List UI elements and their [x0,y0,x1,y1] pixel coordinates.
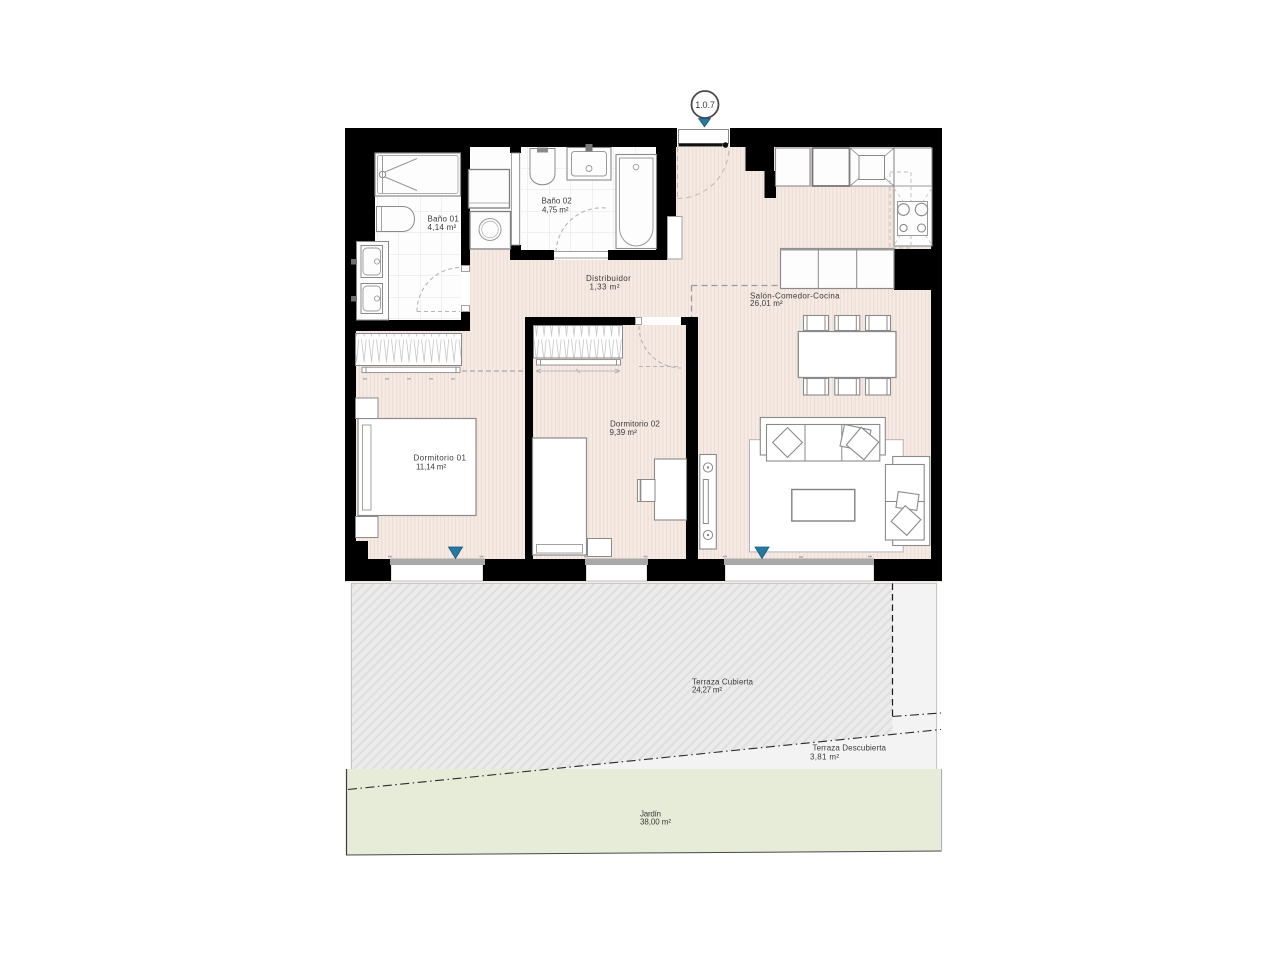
svg-text:38,00 m²: 38,00 m² [640,818,671,827]
svg-text:1.0.7: 1.0.7 [695,100,715,110]
svg-text:Baño 02: Baño 02 [542,197,573,206]
svg-text:9,39 m²: 9,39 m² [610,428,638,437]
svg-text:11,14 m²: 11,14 m² [416,463,446,472]
svg-text:3,81 m²: 3,81 m² [810,753,839,762]
svg-text:4,75 m²: 4,75 m² [542,206,569,215]
svg-text:4,14 m²: 4,14 m² [428,223,457,232]
svg-text:Terraza Descubierta: Terraza Descubierta [813,744,887,753]
svg-text:Dormitorio 01: Dormitorio 01 [414,454,467,463]
svg-text:1,33 m²: 1,33 m² [590,283,620,292]
svg-text:24,27 m²: 24,27 m² [692,686,722,695]
svg-text:26,01 m²: 26,01 m² [750,299,783,308]
